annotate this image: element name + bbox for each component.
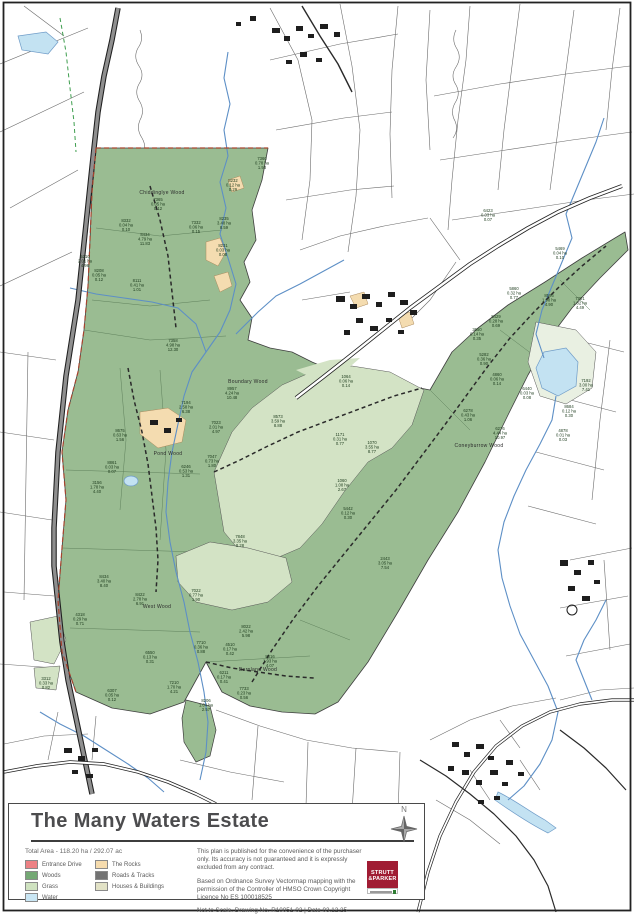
logo-tagline-strip <box>367 888 398 894</box>
legend-label: Woods <box>42 873 61 879</box>
page-title: The Many Waters Estate <box>31 810 269 833</box>
wood-name-label: Pond Wood <box>154 451 183 457</box>
north-label: N <box>390 805 418 814</box>
disclaimer-text: This plan is published for the convenien… <box>197 848 365 873</box>
legend-swatch <box>95 871 108 880</box>
legend-label: Grass <box>42 884 58 890</box>
legend-label: Water <box>42 895 58 901</box>
legend-swatch <box>25 882 38 891</box>
disclaimer-block: This plan is published for the convenien… <box>197 848 365 920</box>
legend-item: Entrance Drive <box>25 860 82 869</box>
legend-item: Water <box>25 893 58 902</box>
title-rule <box>31 840 414 842</box>
legend-label: Roads & Tracks <box>112 873 154 879</box>
wood-name-label: Barnland Wood <box>239 667 277 673</box>
legend-item: Grass <box>25 882 58 891</box>
legend-label: The Rocks <box>112 862 141 868</box>
title-block-panel: The Many Waters Estate Total Area - 118.… <box>8 803 425 900</box>
strutt-parker-logo: STRUTT &PARKER <box>367 861 398 894</box>
drawing-info-text: Not to Scale. Drawing No. R10051-02 | Da… <box>197 907 365 915</box>
logo-green-square <box>393 890 397 894</box>
legend-swatch <box>25 860 38 869</box>
wood-name-label: Coneyburrow Wood <box>455 443 504 449</box>
estate-map: 73600.78 ha1.9382320.12 ha0.2982353.48 h… <box>0 0 634 913</box>
strutt-parker-logo-mark: STRUTT &PARKER <box>367 861 398 888</box>
north-arrow: N <box>390 805 418 849</box>
wood-name-label: Boundary Wood <box>228 379 268 385</box>
legend-item: Roads & Tracks <box>95 871 154 880</box>
legend-item: The Rocks <box>95 860 141 869</box>
legend-swatch <box>25 893 38 902</box>
attribution-text: Based on Ordnance Survey Vectormap mappi… <box>197 878 365 903</box>
wood-name-label: West Wood <box>143 604 171 610</box>
legend-item: Woods <box>25 871 61 880</box>
legend-label: Houses & Buildings <box>112 884 164 890</box>
legend-swatch <box>95 882 108 891</box>
wood-name-label: Chiddinglye Wood <box>139 190 184 196</box>
compass-star-icon <box>390 814 418 844</box>
legend-swatch <box>95 860 108 869</box>
legend-label: Entrance Drive <box>42 862 82 868</box>
total-area-text: Total Area - 118.20 ha / 292.07 ac <box>25 848 122 855</box>
legend-swatch <box>25 871 38 880</box>
legend-item: Houses & Buildings <box>95 882 164 891</box>
